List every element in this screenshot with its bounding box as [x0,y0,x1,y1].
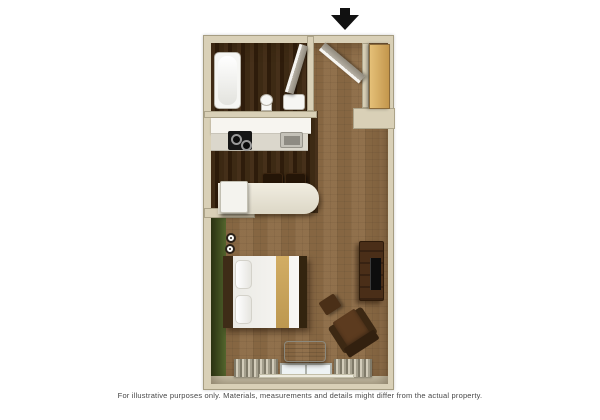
disclaimer-caption: For illustrative purposes only. Material… [0,391,600,400]
sink-basin [284,136,300,145]
bathroom-wall [204,111,317,118]
vanity-sink [283,94,305,110]
toilet [260,94,273,106]
closet-door [369,44,390,109]
tv [370,258,381,290]
kitchen-sink [280,132,303,148]
burner-icon [241,140,252,151]
pillow [235,295,252,324]
bathtub-basin [218,56,237,105]
ac-unit [284,341,326,362]
footboard [299,256,307,328]
wall-lamp-icon [226,233,236,243]
wall-lamp-icon [225,244,235,254]
refrigerator [220,181,248,213]
floor-plan-image: For illustrative purposes only. Material… [0,0,600,420]
bed [223,256,307,328]
entrance-arrow-icon [330,7,360,31]
headboard [223,256,233,328]
bathtub [214,52,241,109]
pillow [235,260,252,289]
bathroom-entry-wall [307,36,314,111]
cooktop [228,131,252,150]
bed-runner [276,256,289,328]
window-sill [259,374,354,378]
closet-wall-bottom [353,108,395,129]
floorplan [203,35,394,390]
tv-stand [359,241,384,301]
